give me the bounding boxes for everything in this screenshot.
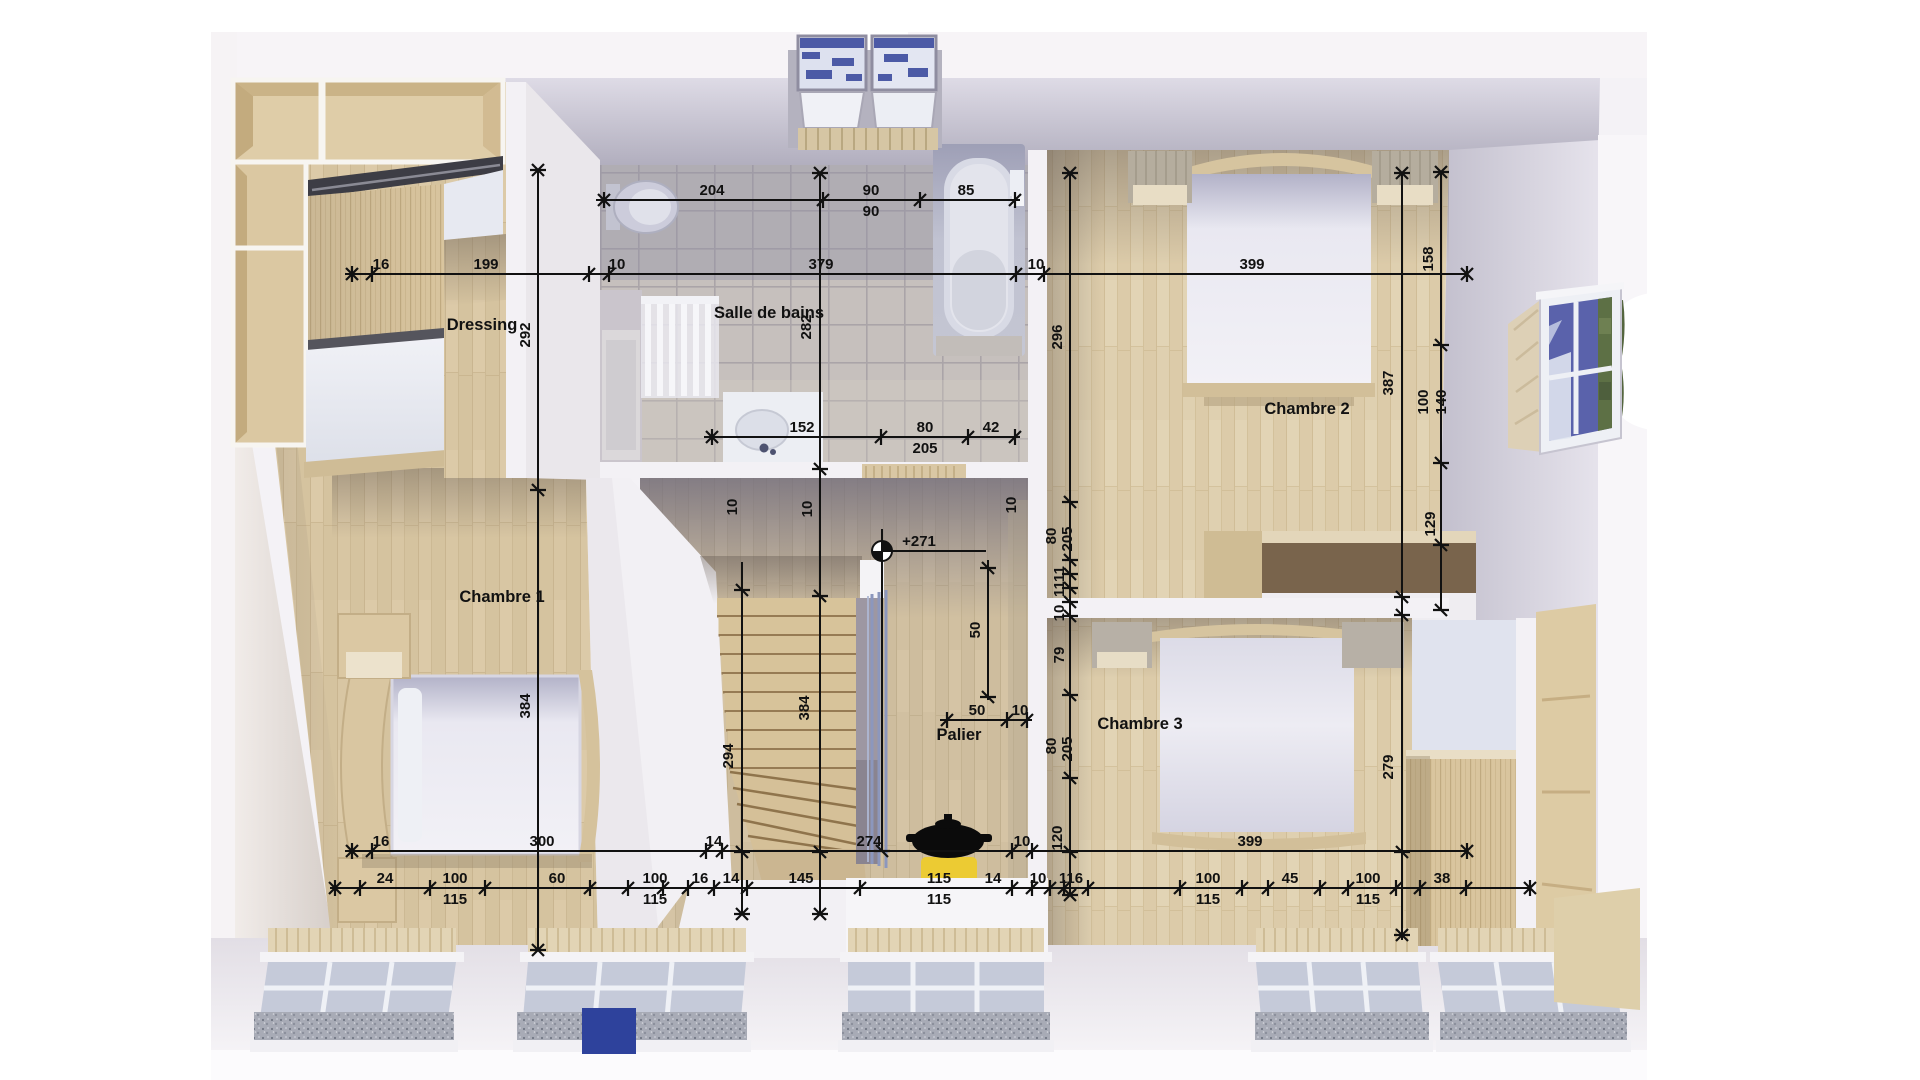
svg-text:10: 10: [724, 499, 741, 516]
svg-text:50: 50: [967, 622, 984, 639]
svg-text:14: 14: [985, 870, 1002, 887]
svg-text:115: 115: [643, 891, 667, 908]
svg-text:100: 100: [642, 870, 667, 887]
svg-text:Palier: Palier: [937, 726, 983, 744]
svg-text:294: 294: [720, 743, 737, 769]
svg-text:80: 80: [917, 419, 934, 436]
svg-text:100: 100: [1195, 870, 1220, 887]
svg-text:140: 140: [1433, 389, 1450, 414]
svg-text:296: 296: [1049, 324, 1066, 349]
svg-text:16: 16: [692, 870, 709, 887]
svg-text:384: 384: [796, 695, 813, 721]
svg-text:45: 45: [1282, 870, 1299, 887]
svg-text:24: 24: [377, 870, 394, 887]
svg-text:38: 38: [1434, 870, 1451, 887]
svg-text:10: 10: [1028, 256, 1045, 273]
svg-text:85: 85: [958, 182, 975, 199]
svg-text:11: 11: [1051, 581, 1068, 597]
svg-text:10: 10: [609, 256, 626, 273]
svg-text:115: 115: [443, 891, 467, 908]
svg-text:11: 11: [1051, 566, 1068, 582]
svg-text:90: 90: [863, 203, 880, 220]
svg-text:90: 90: [863, 182, 880, 199]
svg-text:115: 115: [927, 891, 951, 908]
svg-text:10: 10: [1014, 833, 1031, 850]
svg-text:120: 120: [1049, 825, 1066, 850]
svg-text:152: 152: [789, 419, 814, 436]
svg-text:100: 100: [1415, 389, 1432, 414]
svg-text:115: 115: [1196, 891, 1220, 908]
svg-text:Dressing: Dressing: [447, 316, 518, 334]
svg-text:100: 100: [442, 870, 467, 887]
svg-text:204: 204: [699, 182, 725, 199]
svg-text:387: 387: [1380, 370, 1397, 395]
svg-text:384: 384: [517, 693, 534, 719]
svg-text:399: 399: [1239, 256, 1264, 273]
svg-text:Chambre 1: Chambre 1: [459, 588, 544, 606]
svg-text:16: 16: [373, 256, 390, 273]
svg-text:10: 10: [1012, 702, 1029, 719]
svg-text:129: 129: [1422, 511, 1439, 536]
svg-text:Salle de bains: Salle de bains: [714, 304, 824, 322]
svg-text:399: 399: [1237, 833, 1262, 850]
svg-text:279: 279: [1380, 754, 1397, 779]
svg-text:50: 50: [969, 702, 986, 719]
svg-text:14: 14: [706, 833, 723, 850]
svg-text:205: 205: [1059, 526, 1076, 551]
svg-text:115: 115: [1356, 891, 1380, 908]
svg-text:10: 10: [1030, 870, 1047, 887]
svg-text:80: 80: [1043, 738, 1060, 755]
svg-text:300: 300: [529, 833, 554, 850]
svg-text:79: 79: [1051, 647, 1068, 664]
svg-text:10: 10: [1003, 497, 1020, 514]
svg-text:100: 100: [1355, 870, 1380, 887]
svg-text:+271: +271: [902, 533, 936, 550]
svg-text:80: 80: [1043, 528, 1060, 545]
svg-text:10: 10: [1051, 605, 1068, 622]
svg-text:10: 10: [799, 501, 816, 518]
svg-text:42: 42: [983, 419, 1000, 436]
svg-text:158: 158: [1420, 246, 1437, 271]
svg-text:115: 115: [927, 870, 951, 887]
svg-text:16: 16: [373, 833, 390, 850]
svg-text:205: 205: [912, 440, 937, 457]
svg-text:292: 292: [517, 322, 534, 347]
svg-text:14: 14: [723, 870, 740, 887]
svg-text:Chambre 3: Chambre 3: [1097, 715, 1182, 733]
svg-text:60: 60: [549, 870, 566, 887]
svg-text:Chambre 2: Chambre 2: [1264, 400, 1349, 418]
svg-text:145: 145: [788, 870, 813, 887]
svg-text:205: 205: [1059, 736, 1076, 761]
svg-text:199: 199: [473, 256, 498, 273]
